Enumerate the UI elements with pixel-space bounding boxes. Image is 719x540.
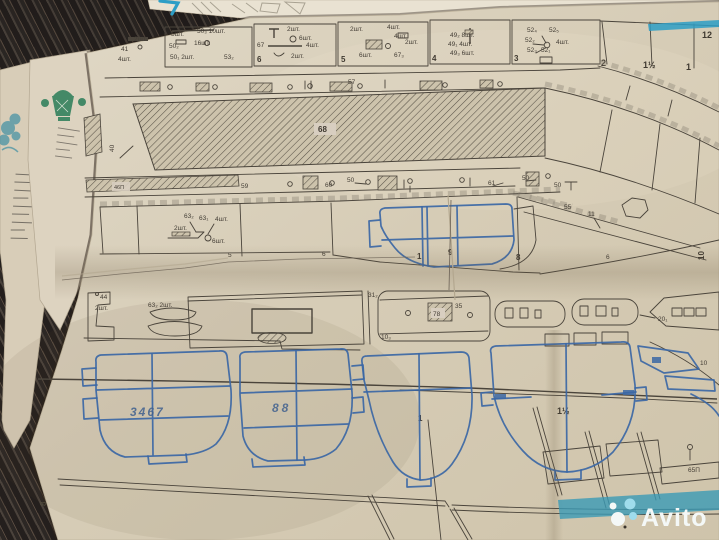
deck-number: 68	[318, 125, 327, 134]
part-number-label: 46П	[114, 185, 124, 191]
part-count-label: 4шт.	[118, 56, 131, 63]
part-number-label: 10	[700, 360, 708, 367]
part-number-label: 40	[109, 144, 116, 152]
box-number: 6	[257, 55, 262, 64]
side-hatched-bar	[84, 114, 102, 156]
section-number: 1½	[643, 60, 656, 70]
part-number-label: 53₂	[224, 54, 234, 61]
part-number-label: 50₂	[169, 43, 179, 50]
part-number-label: 50	[522, 175, 530, 182]
paper-shade	[0, 300, 420, 540]
part-count-label: 6шт.	[212, 238, 225, 245]
part-count-label: 49₂ 8шт.	[450, 32, 475, 39]
part-count-label: 4шт.	[215, 216, 228, 223]
part-number-label: 52₄	[527, 27, 537, 34]
part-count-label: 50₁ 2шт.	[170, 54, 194, 61]
part-number-label: 60	[325, 182, 333, 189]
part-count-label: 6шт.	[299, 35, 312, 42]
watermark-brand-text: Avito	[641, 504, 708, 532]
part-number-label: 57	[348, 79, 356, 86]
part-count-label: 49₁ 4шт.	[448, 41, 472, 48]
part-count-label: 4шт.	[556, 39, 569, 46]
part-number-label: 61	[488, 180, 496, 187]
part-number-label: 65П	[688, 467, 700, 474]
part-number-label: 35	[455, 303, 463, 310]
part-count-label: 4шт.	[306, 42, 319, 49]
part-count-label: 2шт.	[174, 225, 187, 232]
part-number-label: 50	[347, 177, 355, 184]
box-number: 3	[514, 54, 519, 63]
page-number: 8	[39, 501, 48, 506]
photo-of-paper-model-plan: 2шт. 41 4шт. 5шт. 50₃ 10шт. 16шт. 50₂ 50…	[0, 0, 719, 540]
part-number-label: 63₁	[199, 215, 209, 222]
part-number-label: 67₃	[394, 52, 404, 59]
scene: 2шт. 41 4шт. 5шт. 50₃ 10шт. 16шт. 50₂ 50…	[0, 0, 719, 540]
handwritten-frame-numbers: 88	[272, 401, 291, 415]
part-number-label: 10₃	[381, 334, 391, 341]
part-count-label: 5шт.	[171, 31, 184, 38]
part-count-label: 50₃ 10шт.	[197, 28, 225, 35]
part-number-label: 52₃	[527, 47, 537, 54]
part-number-label: 67	[257, 42, 265, 49]
part-count-label: 4шт.	[387, 24, 400, 31]
part-number-label: 52₁	[541, 47, 551, 54]
part-count-label: 2шт.	[350, 26, 363, 33]
part-number-label: 20₁	[658, 316, 668, 323]
part-count-label: 2шт.	[134, 36, 147, 43]
part-number-label: 41	[121, 46, 129, 53]
part-number-label: 78	[433, 311, 441, 318]
section-number: 1	[686, 62, 691, 72]
part-number-label: 55	[564, 204, 572, 211]
part-number-label: 63₂ 2шт.	[148, 302, 173, 309]
part-count-label: 2шт.	[291, 53, 304, 60]
hatched-oval	[258, 333, 286, 344]
part-count-label: 2шт.	[287, 26, 300, 33]
part-number-label: 52₂	[525, 37, 535, 44]
sheet-corner-number: 12	[702, 30, 712, 40]
part-count-label: 2шт.	[405, 39, 418, 46]
part-count-label: 2шт.	[95, 305, 108, 312]
part-number-label: 59	[241, 183, 249, 190]
part-number-label: 63₂	[184, 213, 194, 220]
part-count-label: 16шт.	[194, 40, 211, 47]
box-number: 4	[432, 54, 437, 63]
box-number: 5	[341, 55, 346, 64]
part-number-label: 11	[588, 211, 595, 218]
part-number-label: 52₅	[549, 27, 559, 34]
handwritten-frame-numbers: 3467	[130, 405, 165, 419]
part-count-label: 6шт.	[359, 52, 372, 59]
part-count-label: 49₃ 6шт.	[450, 50, 475, 57]
